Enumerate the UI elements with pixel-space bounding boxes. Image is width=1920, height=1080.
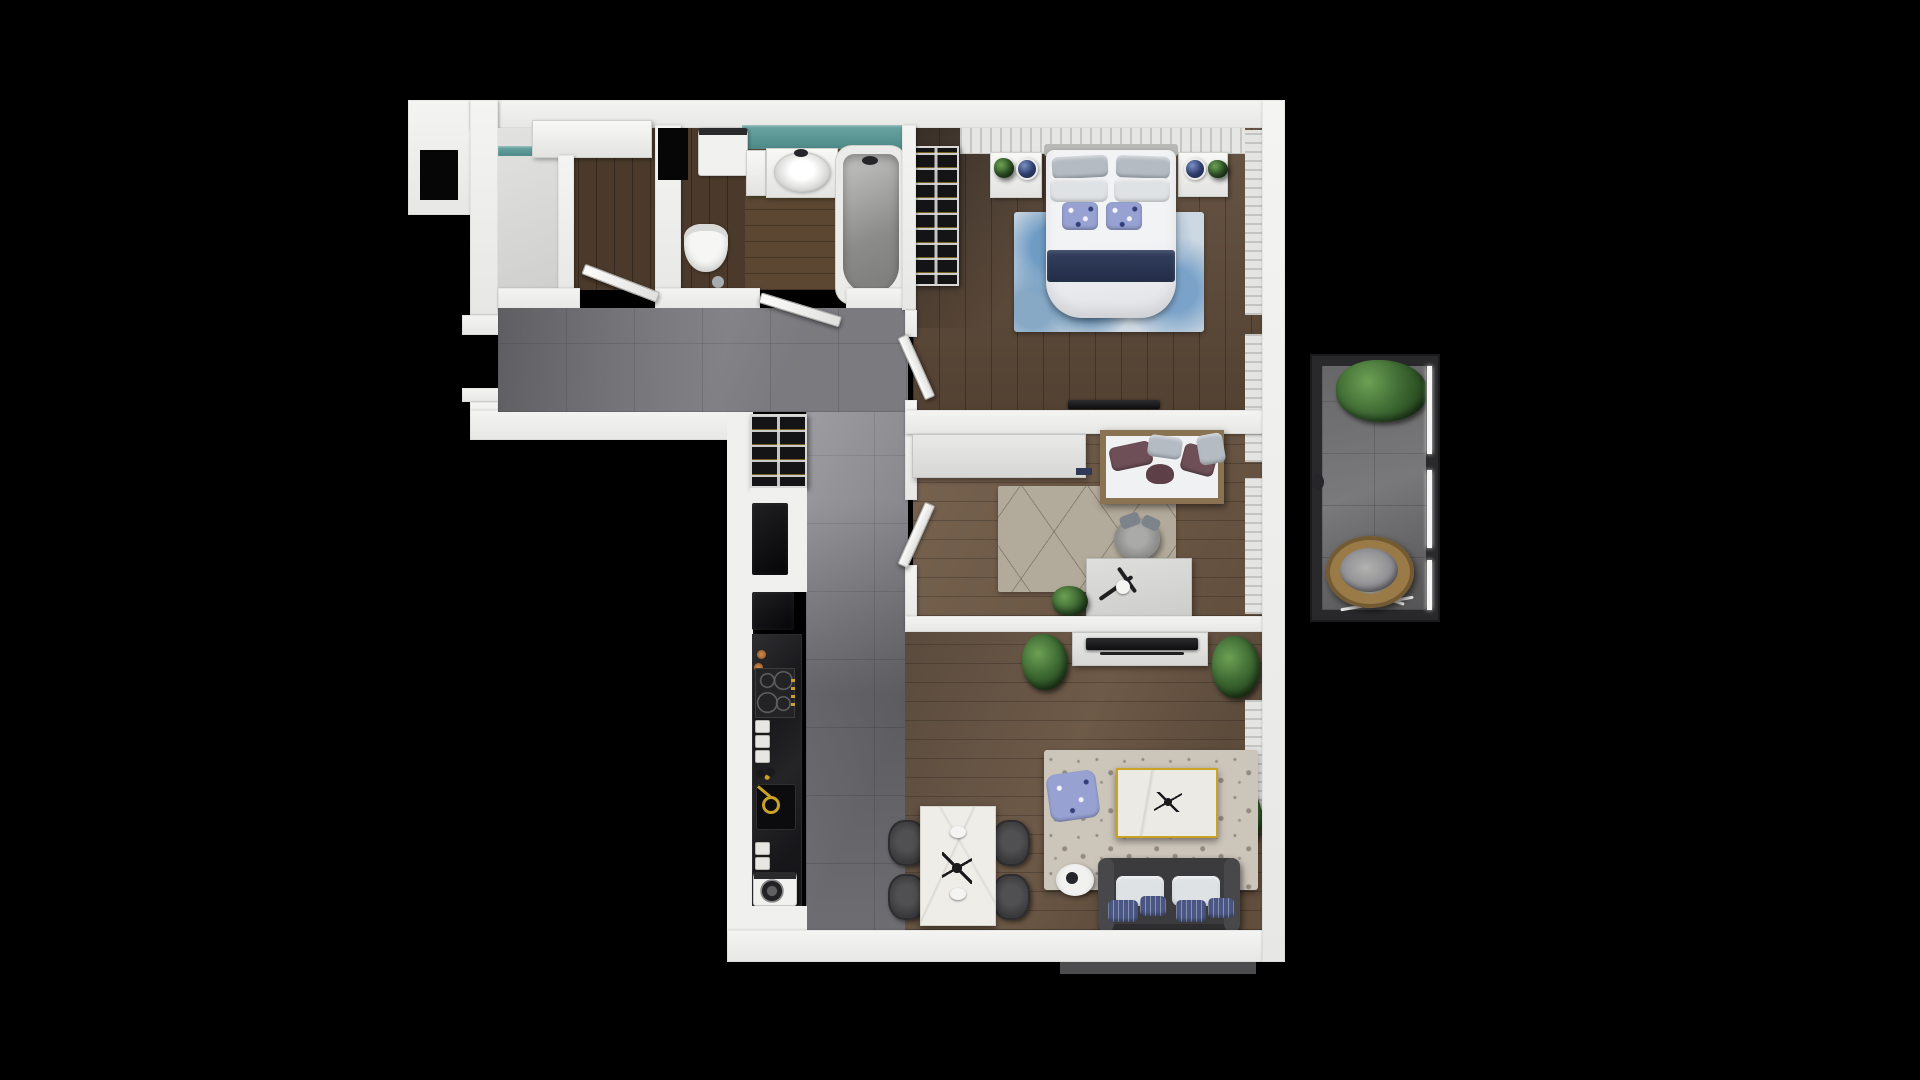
outside-step [1060,962,1256,974]
dining-centerpiece [942,852,972,884]
hall-closet-rack [750,414,807,488]
kitchen-hob [755,668,795,718]
wall-bedroom-south [905,410,1285,434]
kitchen-drawer-2 [755,735,770,748]
kitchen-fridge [752,503,788,575]
living-tv [1086,638,1198,650]
sofa-armrest-right [1224,858,1240,932]
wall-wc-south [655,288,760,310]
bed-throw-navy [1047,250,1175,282]
kitchen-drawer-5 [755,857,770,870]
kitchen-drawer-4 [755,842,770,855]
wall-study-south [905,616,1285,632]
floor-cushion-blue [1045,769,1101,823]
kitchen-drawer-1 [755,720,770,733]
entry-teal-strip [498,146,534,156]
bathtub-faucet [862,156,878,165]
wall-right [1262,100,1285,962]
balcony-chair-cushion [1340,548,1398,592]
wall-entry-south [498,288,580,310]
entry-wardrobe [532,120,652,158]
wall-niche-wc [658,128,688,180]
entry-doorjamb-bottom [462,388,502,402]
kitchen-faucet [762,796,780,814]
wc-washer [698,128,748,176]
nightstand-right-plant [1208,160,1228,178]
nightstand-left-lamp [1016,158,1038,180]
bath-side-cabinet [746,150,766,196]
study-plant [1052,586,1088,616]
balcony-light-3 [1427,560,1432,610]
balcony-light-1 [1427,366,1432,454]
living-tv-stand [1100,652,1184,655]
dining-plate-1 [950,826,966,838]
floorplan-image [0,0,1920,1080]
daybed-pillow-4 [1196,432,1227,466]
bathtub-inner [843,154,899,294]
wall-hall-bottom [470,410,752,440]
daybed-seat-plum [1146,464,1174,484]
living-plant-right [1212,636,1260,698]
bed-pillow-1 [1051,155,1108,180]
bed-pillow-3 [1050,178,1108,202]
wc-toilet-brush [712,276,724,288]
side-table-decor [1066,872,1078,884]
coffee-table-decor [1154,792,1182,812]
kitchen-drawer-3 [755,750,770,763]
kitchen-knob-1 [757,650,766,659]
dining-chair-4 [992,874,1030,920]
bed-pillow-floral-1 [1062,202,1098,230]
bedroom-window-right [1245,130,1262,315]
hallway-floor [498,308,908,412]
balcony-light-2 [1427,470,1432,548]
dining-plate-2 [950,888,966,900]
bath-sink [774,152,830,192]
wall-living-south [727,930,1285,962]
kitchen-divider-2 [750,578,807,592]
living-plant-left [1022,634,1068,690]
sofa-cushion-navy-2 [1140,896,1166,916]
study-desk [1086,558,1192,618]
sofa-cushion-navy-1 [1108,900,1138,922]
sofa-cushion-navy-4 [1208,898,1234,918]
hob-controls [791,678,795,706]
daybed-pillow-2 [1147,434,1184,461]
study-sideboard [912,434,1086,478]
entry-divider-wall [558,155,574,307]
dining-chair-3 [992,820,1030,866]
desk-lamp-base [1116,580,1130,594]
nightstand-left-plant [994,158,1014,178]
bedroom-closet-rack [913,146,959,286]
wall-corridor-right-a [905,310,917,337]
bed-pillow-2 [1116,155,1171,179]
wall-niche-topleft [420,150,458,200]
wall-bedroom-left [902,125,916,310]
bath-faucet [794,149,808,157]
study-window-right-upper [1245,334,1262,462]
bedroom-tv [1068,400,1160,409]
kitchen-oven [752,592,794,630]
balcony-plant [1336,360,1428,422]
sofa-cushion-navy-3 [1176,900,1206,922]
entry-doorjamb-top [462,315,502,335]
wall-left-upper [470,100,498,315]
bed-pillow-4 [1114,178,1170,202]
study-sideboard-book [1076,468,1092,475]
kitchen-washer-door [760,879,784,903]
wall-bath-south [846,288,908,310]
bed-pillow-floral-2 [1106,202,1142,230]
study-window-right-lower [1245,478,1262,614]
nightstand-right-lamp [1184,158,1206,180]
kitchen-jars [754,766,778,781]
balcony-wall-lamp [1312,474,1324,490]
